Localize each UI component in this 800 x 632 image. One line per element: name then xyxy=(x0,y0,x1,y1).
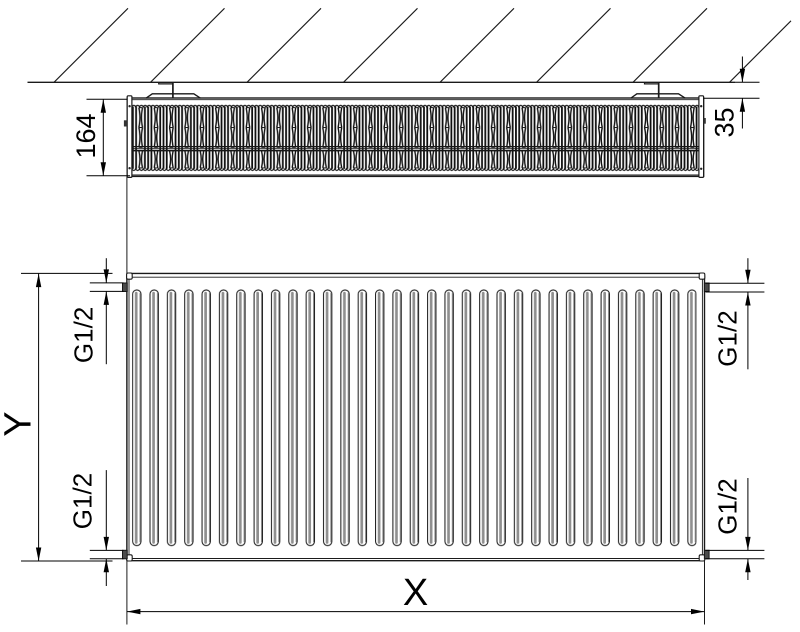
svg-text:G1/2: G1/2 xyxy=(713,310,743,366)
svg-text:G1/2: G1/2 xyxy=(69,307,99,363)
svg-text:164: 164 xyxy=(71,113,101,158)
svg-text:G1/2: G1/2 xyxy=(68,473,98,529)
svg-text:X: X xyxy=(403,572,428,614)
svg-text:Y: Y xyxy=(0,411,39,436)
svg-text:G1/2: G1/2 xyxy=(713,478,743,534)
svg-text:35: 35 xyxy=(709,107,739,137)
